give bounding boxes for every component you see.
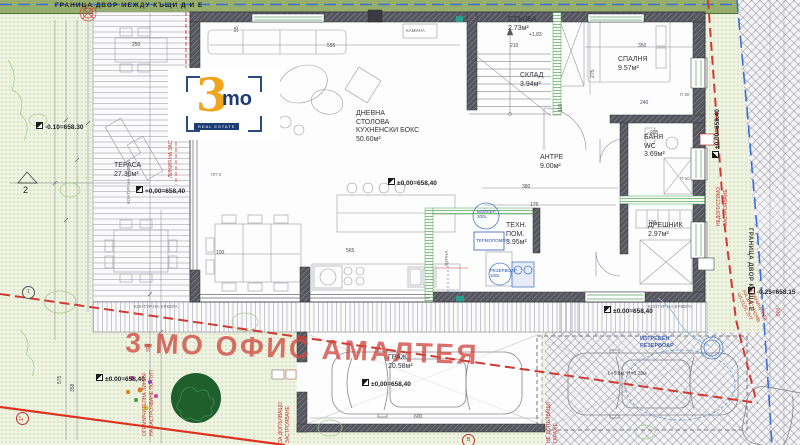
room-banya: БАНЯ WC 3.69м² <box>644 134 665 160</box>
note-pp0: ПП 0 <box>211 172 221 177</box>
logo-bracket-icon <box>248 116 262 132</box>
logo-suffix: mo <box>222 88 252 111</box>
room-dnevna-stolova: ДНЕВНА СТОЛОВА КУХНЕНСКИ БОКС 50.60м² <box>356 110 419 144</box>
dim-100: 100 <box>216 250 224 256</box>
dim-110-a: 110 <box>558 104 564 112</box>
dim-120: 120 <box>648 220 656 226</box>
dim-110-b: 110 <box>576 294 584 300</box>
note-kamina: КАМИНА <box>406 28 425 33</box>
dim-600: 600 <box>414 414 422 420</box>
dim-380: 380 <box>522 184 530 190</box>
labels-layer: ГРАНИЦА ДВОР МЕЖДУ КЪЩИ Д И ЕГРАНИЦА ДВО… <box>0 0 800 445</box>
equip-termopompa: ТЕРМОПОМПА <box>476 238 509 243</box>
marker-1-upper: 1 <box>22 286 35 299</box>
room-sklad: СКЛАД 3.94м² <box>520 72 543 89</box>
note-kontur-erkera-3: КОНТУР НА ЕРКЕРА <box>126 160 131 204</box>
note-p60-b: П 60 <box>680 176 690 181</box>
marker-v: В <box>462 434 475 445</box>
logo-3mo: 3 mo REAL ESTATE <box>168 68 280 140</box>
dim-55: 55 <box>234 26 240 32</box>
dim-350: 350 <box>638 43 646 49</box>
note-izgreben-rezervoar: ИЗГРЕБЕН РЕЗЕРВОАР <box>640 336 674 349</box>
level-garage: ±0,00=658,40 <box>362 379 411 389</box>
equip-boiler: БОЙЛЕР 300L <box>477 209 496 220</box>
level-living: ±0,00=658,40 <box>388 178 437 188</box>
dim-275: 275 <box>590 70 596 78</box>
dim-210: 210 <box>510 43 518 49</box>
level-right: ±0.00=658.40 <box>712 109 722 158</box>
level-south: ±0.00=658,40 <box>604 306 653 316</box>
dim-240: 240 <box>640 100 648 106</box>
equip-rezervoar: РЕЗЕРВОАР 100L <box>490 268 517 279</box>
note-nedopustimo: НЕДОПУСТИМО ЗАСТРОЯВАНЕ <box>716 187 729 226</box>
note-ogranichitelna-linia: ОГРАНИЧИТЕЛНА ЛИНИЯ НА ЗАСТРОЯВАНЕ ПО ПУ… <box>142 370 155 436</box>
floor-plan-page: ГРАНИЦА ДВОР МЕЖДУ КЪЩИ Д И ЕГРАНИЦА ДВО… <box>0 0 800 445</box>
room-spalnya: СПАЛНЯ 9.57м² <box>618 56 648 73</box>
note-furna: ФУРНА <box>444 251 449 266</box>
note-kontur-erkera-2: КОНТУР НА ЕРКЕРА <box>648 304 692 309</box>
note-p60-a: П 60 <box>680 92 690 97</box>
logo-tagline: REAL ESTATE <box>194 123 239 130</box>
dim-565: 565 <box>346 248 354 254</box>
logo-mark: 3 mo REAL ESTATE <box>186 76 262 132</box>
dim-575: 575 <box>57 376 63 384</box>
marker-2: 2 <box>23 185 28 196</box>
note-za-dopalvashto: ЗА ДОПЪЛВАЩО ЗАСТРОЯВАНЕ <box>278 402 291 443</box>
level-yard-left: -0.10=658.30 <box>36 122 84 132</box>
note-kontur-erkera-1: КОНТУР НА ЕРКЕРА <box>134 304 178 309</box>
note-ne-dopalvashto: НЕ ДОПЪЛВАЩО ГАРАЖЕ <box>546 401 559 443</box>
dim-500-red: 500 <box>776 308 783 316</box>
note-rezervoar-dims: L=5.8м H=0.25м <box>608 371 647 377</box>
dim-300-red: 300 <box>146 344 153 352</box>
watermark: 3-МО ОФИС АМАЛТЕЯ <box>125 326 480 372</box>
room-antre: АНТРЕ 9.00м² <box>540 154 563 171</box>
room-garaj: ГРАЖ 20.58м² <box>388 354 413 371</box>
room-stalba: СТЪЛБА 2.73м² <box>508 16 536 33</box>
room-tehn-pom: ТЕХН. ПОМ. 3.95м² <box>506 222 527 248</box>
marker-1-lower: 1* <box>16 412 29 425</box>
level-yard-bottom: ±0.00=658,40 <box>96 374 145 384</box>
dim-358: 358 <box>70 384 76 392</box>
boundary-top: ГРАНИЦА ДВОР МЕЖДУ КЪЩИ Д И Е <box>55 2 203 10</box>
dim-250: 250 <box>132 42 140 48</box>
dim-175: 175 <box>530 202 538 208</box>
dim-595: 595 <box>327 43 335 49</box>
note-stalba-level: +1,83 <box>529 32 542 38</box>
level-terrace: +0,00=658,40 <box>136 186 185 196</box>
dim-205: 205 <box>650 130 658 136</box>
